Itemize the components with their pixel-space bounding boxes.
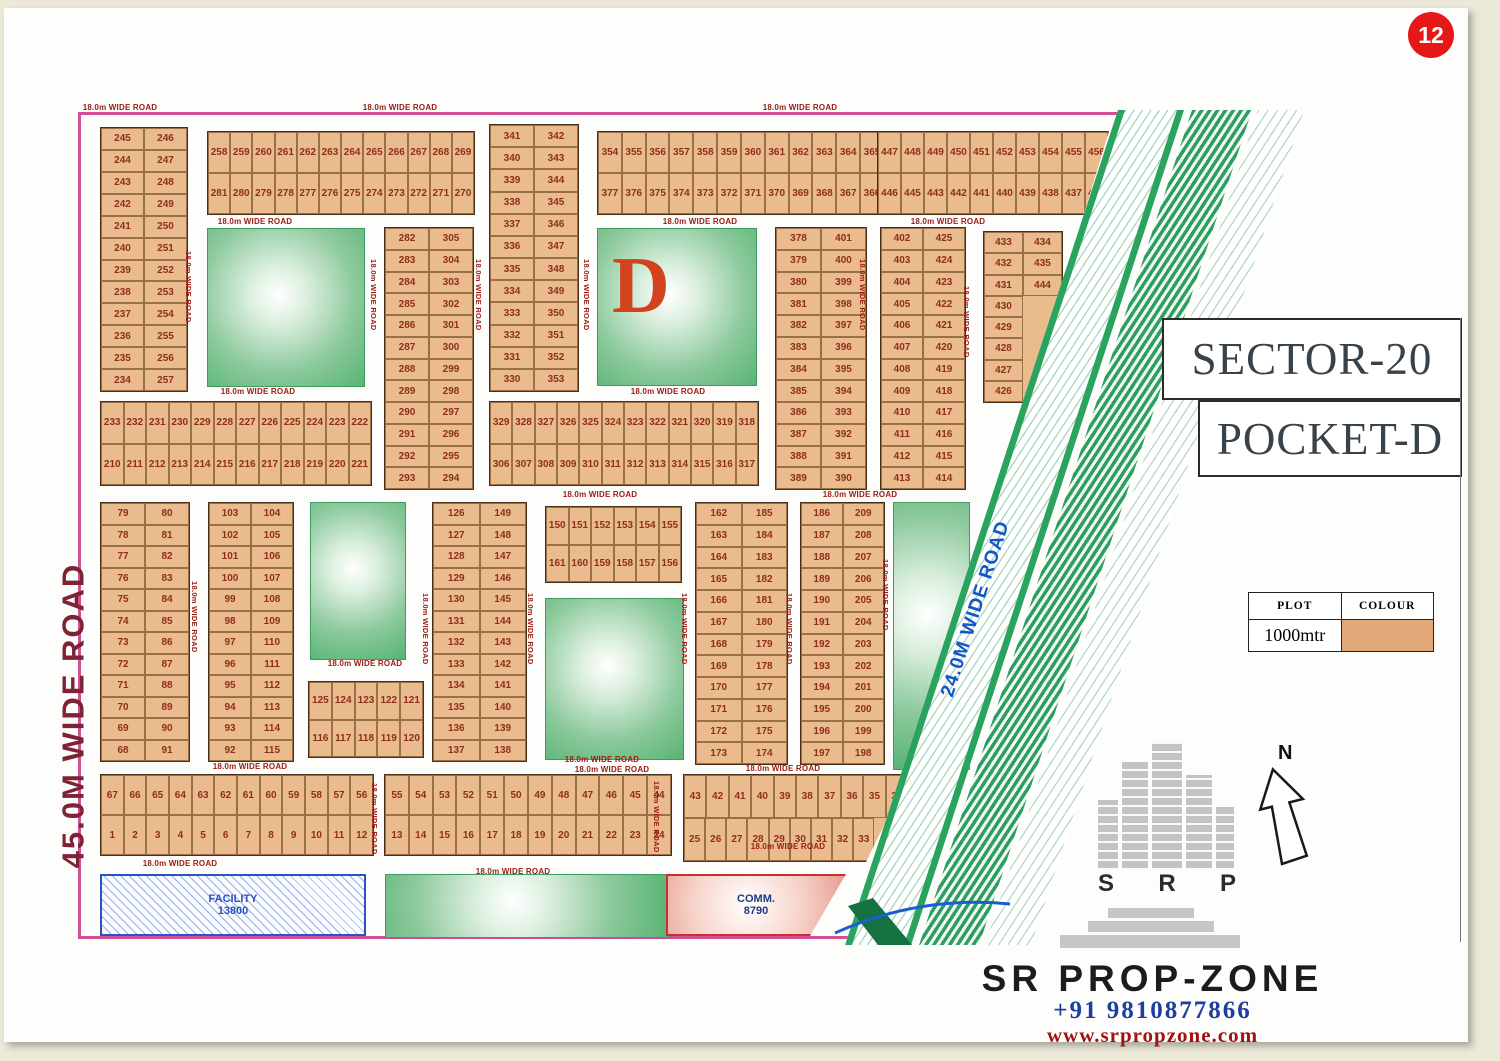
plot-row: 383396 [776, 337, 866, 359]
plot-118: 118 [355, 720, 378, 758]
plot-284: 284 [385, 272, 429, 294]
plot-178: 178 [742, 655, 788, 677]
plot-row: 258259260261262263264265266267268269 [208, 132, 474, 173]
plot-row: 7782 [101, 546, 189, 568]
plot-row: 281280279278277276275274273272271270 [208, 173, 474, 214]
plot-row: 7188 [101, 675, 189, 697]
plot-385: 385 [776, 380, 821, 402]
plot-201: 201 [843, 677, 885, 699]
plot-280: 280 [230, 173, 252, 214]
plot-326: 326 [557, 402, 579, 444]
plot-358: 358 [693, 132, 717, 173]
plot-38: 38 [796, 775, 818, 818]
plot-row: 197198 [801, 742, 884, 764]
plot-row: 99108 [209, 589, 293, 611]
plot-row: 163184 [696, 525, 787, 547]
plot-189: 189 [801, 568, 843, 590]
plot-3: 3 [146, 815, 169, 855]
plot-219: 219 [304, 444, 327, 486]
plot-291: 291 [385, 424, 429, 446]
plot-124: 124 [332, 682, 355, 720]
plot-row: 6891 [101, 740, 189, 762]
plot-134: 134 [433, 675, 480, 697]
plot-row: 332351 [490, 325, 578, 347]
plot-233: 233 [101, 402, 124, 444]
plot-420: 420 [923, 337, 965, 359]
plot-45: 45 [623, 775, 647, 815]
plot-312: 312 [624, 444, 646, 486]
plot-row: 405422 [881, 293, 965, 315]
plot-146: 146 [480, 568, 527, 590]
road-label-18m: 18.0m WIDE ROAD [205, 217, 305, 226]
plot-432: 432 [984, 253, 1023, 274]
plot-250: 250 [144, 216, 187, 238]
logo-letters: S R P [1098, 870, 1236, 898]
plot-426: 426 [984, 381, 1023, 402]
plot-row: 125124123122121 [309, 682, 423, 720]
plot-361: 361 [765, 132, 789, 173]
plot-441: 441 [970, 173, 993, 214]
plot-42: 42 [706, 775, 728, 818]
legend-row: 1000mtr [1249, 620, 1433, 651]
logo-building-bar [1152, 742, 1182, 870]
plot-169: 169 [696, 655, 742, 677]
plot-row: 97110 [209, 632, 293, 654]
plot-266: 266 [385, 132, 407, 173]
plot-422: 422 [923, 293, 965, 315]
plot-5: 5 [192, 815, 215, 855]
plot-row: 7287 [101, 654, 189, 676]
plot-row: 338345 [490, 192, 578, 214]
plot-104: 104 [251, 503, 293, 525]
plot-407: 407 [881, 337, 923, 359]
commercial-area: 8790 [744, 905, 768, 917]
plot-123: 123 [355, 682, 378, 720]
plot-row: 428 [984, 338, 1023, 359]
plot-150: 150 [546, 507, 569, 545]
plot-7: 7 [237, 815, 260, 855]
plot-16: 16 [456, 815, 480, 855]
plot-425: 425 [923, 228, 965, 250]
logo-building-bar [1216, 805, 1234, 870]
plot-row: 252627282930313233 [684, 818, 874, 861]
plot-108: 108 [251, 589, 293, 611]
legend-header-plot: PLOT [1249, 593, 1341, 619]
plot-444: 444 [1023, 275, 1062, 296]
plot-114: 114 [251, 718, 293, 740]
plot-block-Q: 1862091872081882071892061902051912041922… [800, 502, 885, 765]
plot-120: 120 [400, 720, 423, 758]
plot-row: 285302 [385, 293, 473, 315]
plot-258: 258 [208, 132, 230, 173]
plot-20: 20 [552, 815, 576, 855]
plot-446: 446 [878, 173, 901, 214]
pocket-letter: D [612, 246, 670, 326]
plot-166: 166 [696, 590, 742, 612]
plot-row: 386393 [776, 402, 866, 424]
plot-66: 66 [124, 775, 147, 815]
plot-333: 333 [490, 302, 534, 324]
plot-386: 386 [776, 402, 821, 424]
plot-row: 410417 [881, 402, 965, 424]
plot-78: 78 [101, 525, 145, 547]
plot-370: 370 [765, 173, 789, 214]
plot-345: 345 [534, 192, 578, 214]
plot-block-P: 1621851631841641831651821661811671801681… [695, 502, 788, 765]
plot-13: 13 [385, 815, 409, 855]
plot-339: 339 [490, 169, 534, 191]
plot-113: 113 [251, 697, 293, 719]
plot-row: 291296 [385, 424, 473, 446]
plot-363: 363 [812, 132, 836, 173]
plot-209: 209 [843, 503, 885, 525]
plot-296: 296 [429, 424, 473, 446]
plot-layout-map: 45.0M WIDE ROAD 245246244247243248242249… [0, 0, 1500, 1061]
plot-357: 357 [669, 132, 693, 173]
plot-204: 204 [843, 612, 885, 634]
plot-167: 167 [696, 612, 742, 634]
plot-283: 283 [385, 250, 429, 272]
road-label-18m: 18.0m WIDE ROAD [750, 103, 850, 112]
plot-103: 103 [209, 503, 251, 525]
sector-title: SECTOR-20 [1192, 333, 1433, 385]
plot-107: 107 [251, 568, 293, 590]
plot-340: 340 [490, 147, 534, 169]
plot-199: 199 [843, 721, 885, 743]
plot-91: 91 [145, 740, 189, 762]
plot-122: 122 [377, 682, 400, 720]
plot-383: 383 [776, 337, 821, 359]
plot-281: 281 [208, 173, 230, 214]
plot-152: 152 [591, 507, 614, 545]
plot-row: 169178 [696, 655, 787, 677]
plot-49: 49 [528, 775, 552, 815]
plot-279: 279 [252, 173, 274, 214]
facility-plot: FACILITY 13800 [100, 874, 366, 936]
plot-row: 331352 [490, 347, 578, 369]
plot-row: 193202 [801, 655, 884, 677]
plot-72: 72 [101, 654, 145, 676]
plot-81: 81 [145, 525, 189, 547]
plot-419: 419 [923, 359, 965, 381]
park-green-area [545, 598, 684, 760]
plot-184: 184 [742, 525, 788, 547]
plot-332: 332 [490, 325, 534, 347]
plot-301: 301 [429, 315, 473, 337]
road-label-18m-vertical: 18.0m WIDE ROAD [474, 256, 483, 334]
plot-232: 232 [124, 402, 147, 444]
plot-338: 338 [490, 192, 534, 214]
plot-21: 21 [576, 815, 600, 855]
plot-block-R: 125124123122121116117118119120 [308, 681, 424, 758]
plot-133: 133 [433, 654, 480, 676]
plot-row: 412415 [881, 446, 965, 468]
plot-190: 190 [801, 590, 843, 612]
plot-273: 273 [385, 173, 407, 214]
plot-450: 450 [947, 132, 970, 173]
plot-362: 362 [789, 132, 813, 173]
plot-371: 371 [741, 173, 765, 214]
plot-row: 7584 [101, 589, 189, 611]
plot-111: 111 [251, 654, 293, 676]
plot-313: 313 [646, 444, 668, 486]
plot-423: 423 [923, 272, 965, 294]
plot-263: 263 [319, 132, 341, 173]
plot-147: 147 [480, 546, 527, 568]
plot-115: 115 [251, 740, 293, 762]
plot-51: 51 [480, 775, 504, 815]
right-frame-line [1460, 318, 1461, 942]
plot-336: 336 [490, 236, 534, 258]
plot-117: 117 [332, 720, 355, 758]
plot-row: 243248 [101, 172, 187, 194]
plot-row: 136139 [433, 718, 526, 740]
plot-row: 235256 [101, 347, 187, 369]
plot-151: 151 [569, 507, 592, 545]
plot-265: 265 [363, 132, 385, 173]
plot-187: 187 [801, 525, 843, 547]
plot-142: 142 [480, 654, 527, 676]
plot-246: 246 [144, 128, 187, 150]
plot-367: 367 [836, 173, 860, 214]
plot-323: 323 [624, 402, 646, 444]
plot-row: 409418 [881, 380, 965, 402]
plot-32: 32 [832, 818, 853, 861]
plot-25: 25 [684, 818, 705, 861]
facility-area: 13800 [218, 905, 249, 917]
plot-67: 67 [101, 775, 124, 815]
plot-98: 98 [209, 611, 251, 633]
plot-239: 239 [101, 260, 144, 282]
plot-86: 86 [145, 632, 189, 654]
road-label-18m-vertical: 18.0m WIDE ROAD [962, 283, 971, 361]
plot-row: 103104 [209, 503, 293, 525]
plot-88: 88 [145, 675, 189, 697]
plot-row: 378401 [776, 228, 866, 250]
plot-row: 430 [984, 296, 1023, 317]
plot-row: 333350 [490, 302, 578, 324]
plot-row: 330353 [490, 369, 578, 391]
plot-360: 360 [741, 132, 765, 173]
plot-106: 106 [251, 546, 293, 568]
plot-109: 109 [251, 611, 293, 633]
plot-342: 342 [534, 125, 578, 147]
plot-179: 179 [742, 634, 788, 656]
plot-391: 391 [821, 446, 866, 468]
plot-325: 325 [579, 402, 601, 444]
plot-39: 39 [774, 775, 796, 818]
plot-row: 96111 [209, 654, 293, 676]
plot-37: 37 [818, 775, 840, 818]
plot-259: 259 [230, 132, 252, 173]
plot-392: 392 [821, 424, 866, 446]
plot-192: 192 [801, 634, 843, 656]
plot-319: 319 [713, 402, 735, 444]
plot-row: 288299 [385, 359, 473, 381]
plot-96: 96 [209, 654, 251, 676]
plot-79: 79 [101, 503, 145, 525]
plot-347: 347 [534, 236, 578, 258]
plot-116: 116 [309, 720, 332, 758]
plot-row: 150151152153154155 [546, 507, 681, 545]
plot-71: 71 [101, 675, 145, 697]
plot-222: 222 [349, 402, 372, 444]
plot-171: 171 [696, 699, 742, 721]
plot-380: 380 [776, 272, 821, 294]
plot-297: 297 [429, 402, 473, 424]
plot-row: 384395 [776, 359, 866, 381]
plot-row: 403424 [881, 250, 965, 272]
plot-353: 353 [534, 369, 578, 391]
plot-row: 289298 [385, 380, 473, 402]
plot-127: 127 [433, 525, 480, 547]
plot-row: 7089 [101, 697, 189, 719]
plot-292: 292 [385, 446, 429, 468]
plot-238: 238 [101, 281, 144, 303]
plot-401: 401 [821, 228, 866, 250]
plot-36: 36 [841, 775, 863, 818]
plot-block-I: 2823052833042843032853022863012873002882… [384, 227, 474, 490]
plot-403: 403 [881, 250, 923, 272]
plot-289: 289 [385, 380, 429, 402]
plot-62: 62 [214, 775, 237, 815]
plot-row: 164183 [696, 547, 787, 569]
plot-285: 285 [385, 293, 429, 315]
road-label-18m: 18.0m WIDE ROAD [562, 765, 662, 774]
logo-pedestal [1108, 908, 1194, 918]
plot-429: 429 [984, 317, 1023, 338]
plot-74: 74 [101, 611, 145, 633]
plot-260: 260 [252, 132, 274, 173]
plot-row: 173174 [696, 742, 787, 764]
plot-412: 412 [881, 446, 923, 468]
plot-235: 235 [101, 347, 144, 369]
plot-row: 134141 [433, 675, 526, 697]
plot-364: 364 [836, 132, 860, 173]
plot-row: 413414 [881, 467, 965, 489]
plot-row: 555453525150494847464544 [385, 775, 671, 815]
plot-row: 408419 [881, 359, 965, 381]
plot-row: 406421 [881, 315, 965, 337]
plot-131: 131 [433, 611, 480, 633]
plot-9: 9 [282, 815, 305, 855]
plot-block-L: 7980788177827683758474857386728771887089… [100, 502, 190, 762]
plot-89: 89 [145, 697, 189, 719]
plot-180: 180 [742, 612, 788, 634]
plot-row: 431444 [984, 275, 1062, 296]
plot-368: 368 [812, 173, 836, 214]
plot-198: 198 [843, 742, 885, 764]
plot-225: 225 [281, 402, 304, 444]
plot-268: 268 [430, 132, 452, 173]
plot-294: 294 [429, 467, 473, 489]
plot-215: 215 [214, 444, 237, 486]
plot-241: 241 [101, 216, 144, 238]
plot-64: 64 [169, 775, 192, 815]
plot-320: 320 [691, 402, 713, 444]
plot-row: 389390 [776, 467, 866, 489]
plot-28: 28 [747, 818, 768, 861]
plot-row: 388391 [776, 446, 866, 468]
plot-row: 127148 [433, 525, 526, 547]
plot-381: 381 [776, 293, 821, 315]
plot-188: 188 [801, 547, 843, 569]
plot-405: 405 [881, 293, 923, 315]
plot-row: 132143 [433, 632, 526, 654]
plot-140: 140 [480, 697, 527, 719]
plot-row: 433434 [984, 232, 1062, 253]
plot-445: 445 [901, 173, 924, 214]
plot-row: 446445443442441440439438437436 [878, 173, 1108, 214]
plot-395: 395 [821, 359, 866, 381]
plot-row: 130145 [433, 589, 526, 611]
plot-299: 299 [429, 359, 473, 381]
plot-447: 447 [878, 132, 901, 173]
plot-52: 52 [456, 775, 480, 815]
plot-191: 191 [801, 612, 843, 634]
plot-130: 130 [433, 589, 480, 611]
road-label-18m: 18.0m WIDE ROAD [463, 867, 563, 876]
road-label-18m: 18.0m WIDE ROAD [898, 217, 998, 226]
brand-name: SR PROP-ZONE [960, 958, 1345, 1000]
plot-row: 427 [984, 360, 1023, 381]
plot-54: 54 [409, 775, 433, 815]
plot-455: 455 [1062, 132, 1085, 173]
plot-row: 429 [984, 317, 1023, 338]
plot-82: 82 [145, 546, 189, 568]
plot-80: 80 [145, 503, 189, 525]
plot-349: 349 [534, 280, 578, 302]
plot-162: 162 [696, 503, 742, 525]
plot-244: 244 [101, 150, 144, 172]
plot-43: 43 [684, 775, 706, 818]
plot-row: 354355356357358359360361362363364365 [598, 132, 884, 173]
plot-row: 236255 [101, 325, 187, 347]
plot-148: 148 [480, 525, 527, 547]
park-green-area [385, 874, 669, 938]
plot-269: 269 [452, 132, 474, 173]
plot-row: 172175 [696, 721, 787, 743]
legend-table: PLOT COLOUR 1000mtr [1248, 592, 1434, 652]
plot-272: 272 [408, 173, 430, 214]
plot-block-J: 3293283273263253243233223213203193183063… [489, 401, 759, 486]
plot-row: 447448449450451452453454455456 [878, 132, 1108, 173]
plot-15: 15 [433, 815, 457, 855]
plot-row: 380399 [776, 272, 866, 294]
plot-95: 95 [209, 675, 251, 697]
plot-196: 196 [801, 721, 843, 743]
plot-69: 69 [101, 718, 145, 740]
plot-19: 19 [528, 815, 552, 855]
road-label-18m: 18.0m WIDE ROAD [738, 842, 838, 851]
plot-94: 94 [209, 697, 251, 719]
plot-408: 408 [881, 359, 923, 381]
plot-row: 233232231230229228227226225224223222 [101, 402, 371, 444]
plot-165: 165 [696, 568, 742, 590]
plot-182: 182 [742, 568, 788, 590]
plot-330: 330 [490, 369, 534, 391]
plot-195: 195 [801, 699, 843, 721]
plot-290: 290 [385, 402, 429, 424]
plot-451: 451 [970, 132, 993, 173]
plot-row: 43424140393837363534 [684, 775, 908, 818]
plot-421: 421 [923, 315, 965, 337]
road-label-18m: 18.0m WIDE ROAD [70, 103, 170, 112]
plot-10: 10 [305, 815, 328, 855]
plot-70: 70 [101, 697, 145, 719]
plot-row: 131144 [433, 611, 526, 633]
plot-132: 132 [433, 632, 480, 654]
